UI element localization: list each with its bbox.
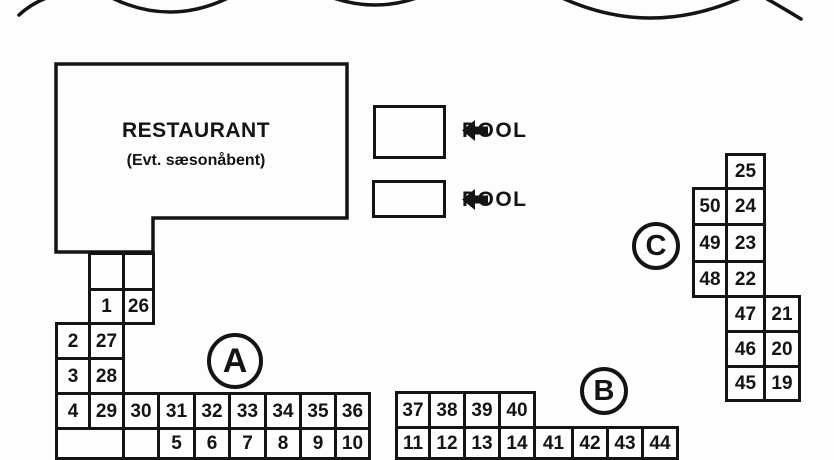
treeline-curve xyxy=(108,0,232,12)
unit-cell-31: 31 xyxy=(157,392,196,430)
unit-cell-3: 3 xyxy=(55,357,91,395)
unit-cell-41: 41 xyxy=(533,426,574,460)
unit-cell-28: 28 xyxy=(88,357,125,395)
unit-cell-21: 21 xyxy=(763,295,801,333)
unit-cell-29: 29 xyxy=(88,392,125,430)
unit-cell-38: 38 xyxy=(428,391,466,429)
unit-cell-blank xyxy=(122,427,160,460)
unit-cell-48: 48 xyxy=(692,260,728,298)
unit-cell-44: 44 xyxy=(641,426,679,460)
unit-cell-1: 1 xyxy=(88,288,125,325)
treeline-curve xyxy=(19,0,52,15)
unit-cell-39: 39 xyxy=(463,391,501,429)
site-plan-canvas: RESTAURANT (Evt. sæsonåbent) POOL POOL 1… xyxy=(0,0,834,460)
restaurant-title: RESTAURANT xyxy=(56,119,336,143)
unit-cell-11: 11 xyxy=(395,426,431,460)
unit-cell-35: 35 xyxy=(299,392,337,430)
unit-cell-6: 6 xyxy=(193,427,231,460)
section-marker-a: A xyxy=(207,333,263,389)
unit-cell-46: 46 xyxy=(725,330,766,368)
unit-cell-14: 14 xyxy=(498,426,536,460)
unit-cell-34: 34 xyxy=(264,392,302,430)
section-marker-c: C xyxy=(632,222,680,270)
treeline-curve xyxy=(328,0,422,5)
unit-cell-23: 23 xyxy=(725,223,766,263)
pool-box-lower xyxy=(372,180,446,218)
treeline-curve xyxy=(762,0,801,19)
unit-cell-42: 42 xyxy=(571,426,609,460)
unit-cell-49: 49 xyxy=(692,223,728,263)
pool-box-upper xyxy=(373,105,446,159)
unit-cell-19: 19 xyxy=(763,365,801,402)
unit-cell-45: 45 xyxy=(725,365,766,402)
unit-cell-7: 7 xyxy=(228,427,267,460)
unit-cell-50: 50 xyxy=(692,187,728,226)
unit-cell-2: 2 xyxy=(55,322,91,360)
unit-cell-33: 33 xyxy=(228,392,267,430)
unit-cell-32: 32 xyxy=(193,392,231,430)
unit-cell-25: 25 xyxy=(725,153,766,190)
unit-cell-blank xyxy=(122,252,155,291)
unit-cell-30: 30 xyxy=(122,392,160,430)
restaurant-subtitle: (Evt. sæsonåbent) xyxy=(56,152,336,170)
unit-cell-36: 36 xyxy=(334,392,371,430)
arrow-left-icon xyxy=(462,119,488,142)
unit-cell-blank xyxy=(88,252,125,291)
unit-cell-9: 9 xyxy=(299,427,337,460)
treeline-curves xyxy=(19,0,801,19)
treeline-curve xyxy=(558,0,745,18)
unit-cell-20: 20 xyxy=(763,330,801,368)
unit-cell-8: 8 xyxy=(264,427,302,460)
pool-callout-upper: POOL xyxy=(462,119,528,143)
unit-cell-24: 24 xyxy=(725,187,766,226)
arrow-left-icon xyxy=(462,188,488,211)
unit-cell-40: 40 xyxy=(498,391,536,429)
unit-cell-4: 4 xyxy=(55,392,91,430)
section-marker-b: B xyxy=(580,367,628,415)
unit-cell-12: 12 xyxy=(428,426,466,460)
unit-cell-26: 26 xyxy=(122,288,155,325)
unit-cell-43: 43 xyxy=(606,426,644,460)
unit-cell-37: 37 xyxy=(395,391,431,429)
unit-cell-47: 47 xyxy=(725,295,766,333)
unit-cell-22: 22 xyxy=(725,260,766,298)
unit-cell-5: 5 xyxy=(157,427,196,460)
unit-cell-13: 13 xyxy=(463,426,501,460)
unit-cell-27: 27 xyxy=(88,322,125,360)
unit-cell-blank xyxy=(55,427,125,460)
pool-callout-lower: POOL xyxy=(462,188,528,212)
unit-cell-10: 10 xyxy=(334,427,371,460)
